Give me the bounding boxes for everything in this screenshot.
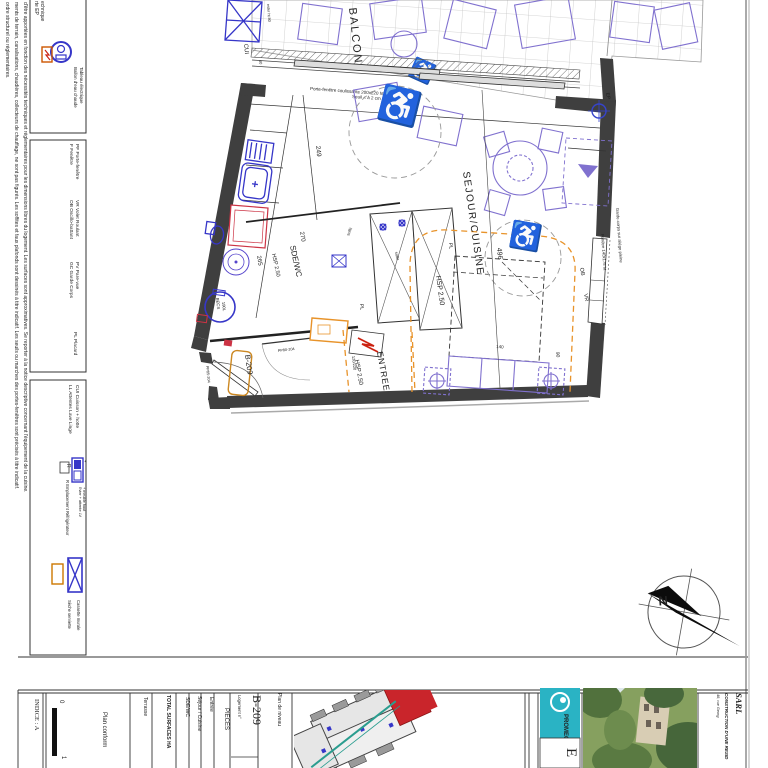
legend-ob: OB Oscillo-battant [68,200,74,240]
dim-90: 90 [554,352,561,358]
table-terrasse: Terrasse [142,697,148,716]
table-pieces-header: PIECES [223,708,229,730]
logement-label: Logement n° [237,695,242,719]
soffit-box [310,318,348,343]
washbasin-fixture [223,249,249,275]
soffit-label-1: soffit [345,226,353,236]
towel-dryer-label: Sèche serviette [67,600,72,630]
svg-text:PROMEO: PROMEO [562,714,568,741]
north-compass: N [631,561,752,666]
threshold-label: Seuil < à 2 cm [352,94,381,101]
floor-plan: BALCON ♿ ester ht 80 Porte-fenêtre couli… [191,0,703,413]
shower [332,211,420,323]
legend-pv: PV Pare-vue [74,262,80,290]
dining-table [484,128,567,215]
dim-249: 249 [303,95,322,220]
legend-gaine-technique-label: echnique [39,1,45,22]
logement-number: B-209 [250,695,264,725]
legend-gc: GC Garde Corps [68,262,74,299]
svg-text:BECS: BECS [215,298,221,310]
sde-pl-label: PL [358,304,365,311]
legend-pl: PL Placard [72,332,78,356]
promeo-logo: PROMEO E [540,688,580,768]
etage-letter: E [563,748,579,757]
cooktop-fixture [228,205,268,248]
table-total: TOTAL SURFACES HA [165,695,171,749]
entry-door-label: PP85-204 [205,366,211,383]
closet-pl-label: PL [447,243,454,250]
scale-bar: 0 1 [52,700,66,760]
legend-pf: PF Porte-fenêtre [74,144,80,180]
cassette-label: Cassette murale [76,600,81,631]
guardrail-label: Garde-corps sur allège pleine [615,208,624,264]
table-entree: Entrée [208,697,214,712]
svg-text:249: 249 [314,145,322,157]
legend-box-openings: PF Porte-fenêtre F Fenêtre VR Volet Roul… [30,140,86,372]
sink-label-2: + meuble haut [82,487,86,512]
svg-text:♿: ♿ [374,82,425,130]
table-sejour: Séjour / Cuisine [196,696,202,732]
sde-hsp: HSP 2.50 [270,253,281,277]
ob-label: OB [578,267,585,276]
dim-270: 270 [298,231,306,243]
svg-text:B-209: B-209 [243,354,255,375]
svg-text:♿: ♿ [507,218,544,253]
vr-label: VR [582,293,589,302]
electric-panel-label: Tableau électrique [79,67,84,104]
plan-conform-label: Plan conform [101,712,107,747]
legend-vr: VR Volet Roulant [74,200,80,237]
legend-box-utilities: rte EP echnique Ballon d'eau chaude Tabl… [30,0,86,133]
legend-cui: CUI Cuisson + hotte [74,385,80,428]
red-fixture-2 [224,339,233,346]
legend-descente-ep-label: rte EP [33,1,39,16]
svg-text:R: R [65,464,71,468]
key-plan [284,666,446,768]
indice-label: INDICE : A [33,699,40,731]
sidebar-notes: d'être apportées en fonction des nécessi… [4,2,28,493]
entree-label: ENTREE [375,351,392,393]
water-heater-label: Ballon d'eau chaude [73,67,78,108]
kitchen-label: CUI [242,44,249,55]
company-name: SARL [734,693,744,714]
svg-text:1: 1 [60,756,66,760]
legend-ll: LL Attentes Lave Linge [67,385,73,434]
north-letter: N [658,593,668,609]
drawing-sheet: d'être apportées en fonction des nécessi… [0,0,768,768]
legend-f: F Fenêtre [68,144,74,165]
note-line-2: ments de terrain, canalisations, chaudiè… [13,2,19,489]
fridge-label: R Emplacement Réfrigérateur [65,480,70,536]
sink-fixture [238,139,276,204]
company-address: 48, rue Georg [716,694,720,718]
legend-box-kitchen: CUI Cuisson + hotte LL Attentes Lave Lin… [30,380,88,655]
svg-text:496: 496 [495,247,503,259]
sejour-label: SEJOUR/CUISINE [460,171,485,276]
closet [412,208,462,330]
company-construction: CONSTRUCTION D'UNE RESID [724,693,729,760]
entry-door [212,360,263,398]
soffit-height: 120/220 [351,356,358,372]
svg-text:0: 0 [58,700,64,704]
svg-text:190L: 190L [221,302,227,312]
title-block: INDICE : A 0 1 Plan conform Terrasse TOT… [18,666,748,768]
interior-door-label: PP80-204 [278,347,295,353]
company-info: 48, rue Georg CONSTRUCTION D'UNE RESID S… [716,693,744,760]
dim-265: 265 [255,255,263,267]
dim-40: 40 [258,60,264,66]
sde-label: SDE/WC [288,245,304,278]
table-sde: SDE/WC [184,697,190,717]
plan-niveau-label: Plan de niveau [276,693,282,726]
note-line-1: d'être apportées en fonction des nécessi… [22,2,28,493]
note-line-3: ordre structurel ou réglementaires. [4,2,10,78]
sink-label-1: Evier + attente LV [78,487,82,517]
interior-door [262,338,312,380]
